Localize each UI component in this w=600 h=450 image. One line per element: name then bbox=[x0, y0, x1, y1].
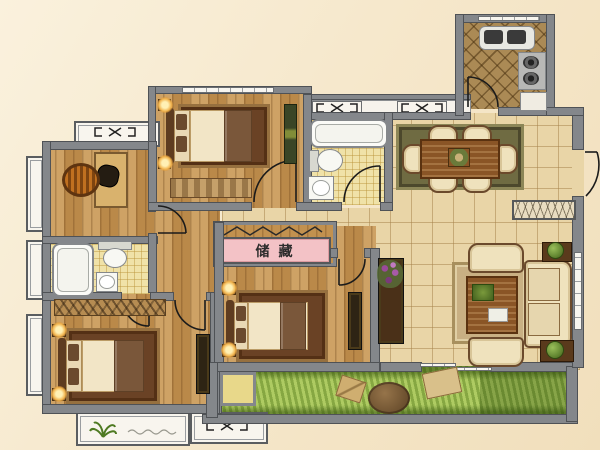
sink-basin bbox=[312, 180, 330, 196]
sofa-cushion bbox=[528, 303, 560, 336]
lamp-icon bbox=[157, 97, 173, 113]
wall bbox=[455, 14, 464, 116]
lamp-icon bbox=[51, 322, 67, 338]
wall bbox=[380, 362, 422, 372]
lamp-icon bbox=[221, 280, 237, 296]
wall bbox=[566, 366, 578, 422]
coffee-table-plant bbox=[472, 284, 494, 301]
kitchen-counter bbox=[520, 92, 547, 111]
balcony-grass-shade bbox=[480, 368, 572, 416]
stove-burner-icon bbox=[523, 56, 539, 69]
lamp-icon bbox=[51, 386, 67, 402]
door-swing-icon bbox=[338, 258, 366, 286]
sink-basin bbox=[484, 30, 503, 44]
wall bbox=[330, 248, 338, 258]
door-swing-icon bbox=[342, 164, 382, 204]
window-right-wall bbox=[574, 252, 582, 330]
bed-blanket bbox=[280, 302, 306, 350]
wall bbox=[296, 202, 342, 211]
wall bbox=[546, 14, 555, 116]
wall bbox=[546, 107, 584, 116]
flower-arrangement bbox=[377, 260, 403, 288]
door-swing-icon bbox=[466, 75, 500, 109]
balcony-stool bbox=[220, 372, 256, 406]
pillow bbox=[176, 136, 187, 152]
pillow bbox=[236, 306, 246, 321]
plant-icon bbox=[88, 417, 118, 439]
pillow bbox=[176, 114, 187, 130]
sink-basin bbox=[99, 275, 115, 289]
tv-cabinet bbox=[196, 334, 210, 394]
storage-label: 储藏 bbox=[217, 237, 331, 264]
toilet-bowl bbox=[317, 149, 343, 172]
entry-door-swing-icon bbox=[583, 150, 600, 198]
sofa-cushion bbox=[528, 268, 560, 301]
storage-label-text: 储藏 bbox=[247, 241, 302, 261]
lamp-icon bbox=[157, 155, 173, 171]
pillow bbox=[68, 344, 79, 361]
table-centerpiece bbox=[448, 148, 470, 167]
pillow bbox=[68, 368, 79, 385]
bathtub bbox=[310, 119, 388, 148]
bathtub bbox=[52, 243, 94, 297]
wall bbox=[148, 233, 157, 293]
bed-blanket bbox=[224, 110, 252, 162]
armchair bbox=[468, 243, 524, 273]
balcony-stone-table bbox=[368, 382, 410, 414]
armchair bbox=[468, 337, 524, 367]
rattan-chair bbox=[62, 163, 100, 197]
squiggle-icon bbox=[126, 428, 178, 436]
tv-cabinet bbox=[284, 104, 297, 164]
window-kitchen-top bbox=[478, 16, 540, 21]
wall bbox=[202, 414, 578, 424]
window-bedroom-top bbox=[182, 87, 274, 93]
entry-console bbox=[512, 200, 576, 220]
floor-plan: 储藏 bbox=[0, 0, 600, 450]
wall bbox=[214, 362, 380, 372]
wardrobe bbox=[170, 178, 252, 198]
dining-chair bbox=[498, 144, 518, 174]
door-swing-icon bbox=[174, 299, 206, 331]
stove-burner-icon bbox=[523, 72, 539, 85]
wardrobe-hatched bbox=[54, 299, 166, 316]
sink-basin bbox=[507, 30, 526, 44]
hanger-zigzag-icon bbox=[222, 224, 324, 237]
tv-cabinet bbox=[348, 292, 362, 350]
dining-chair bbox=[402, 144, 422, 174]
bed-blanket bbox=[114, 340, 144, 392]
wall bbox=[148, 141, 157, 203]
sliding-door-balcony bbox=[452, 367, 492, 371]
window-icon bbox=[92, 126, 138, 138]
door-swing-icon bbox=[157, 204, 187, 234]
wall bbox=[42, 404, 222, 414]
toilet-bowl bbox=[103, 248, 127, 268]
pillow bbox=[236, 328, 246, 343]
lamp-icon bbox=[221, 342, 237, 358]
sliding-door-balcony bbox=[420, 363, 456, 367]
wall bbox=[42, 141, 156, 150]
plant-icon bbox=[548, 243, 563, 258]
wall bbox=[42, 141, 51, 414]
plant-icon bbox=[547, 342, 563, 358]
coffee-table-paper bbox=[488, 308, 508, 322]
